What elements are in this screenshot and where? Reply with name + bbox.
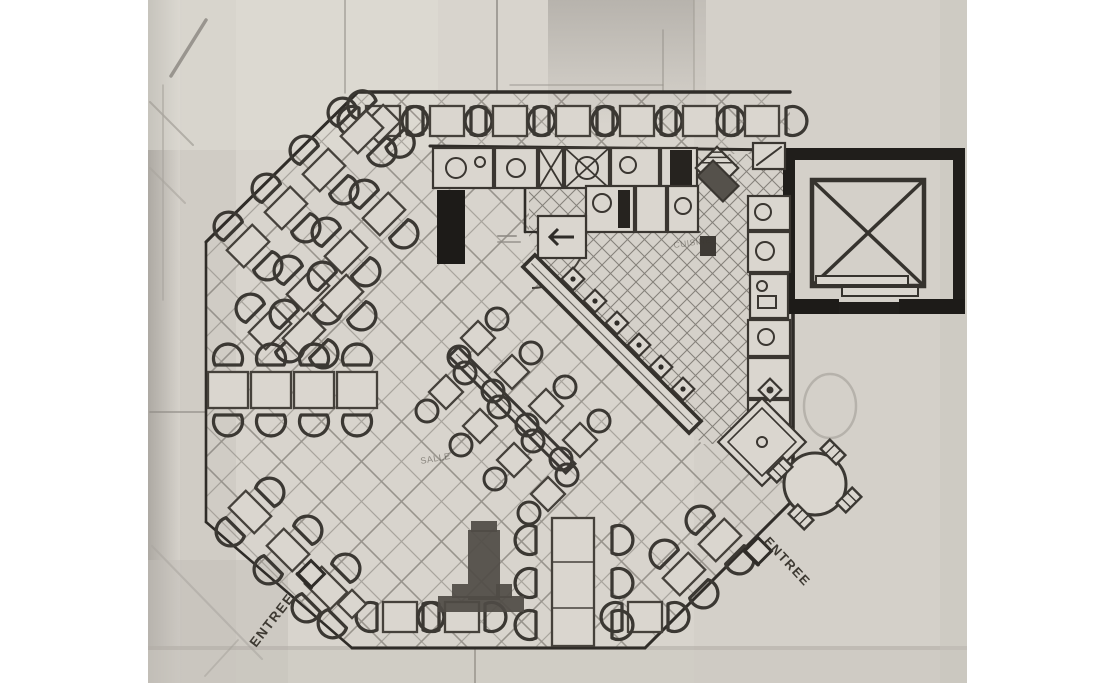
floor-plan-photo: ENTREE ENTREE SALLE CUISINE	[0, 0, 1110, 683]
floor-plan-drawing: ENTREE ENTREE SALLE CUISINE	[0, 0, 1110, 683]
